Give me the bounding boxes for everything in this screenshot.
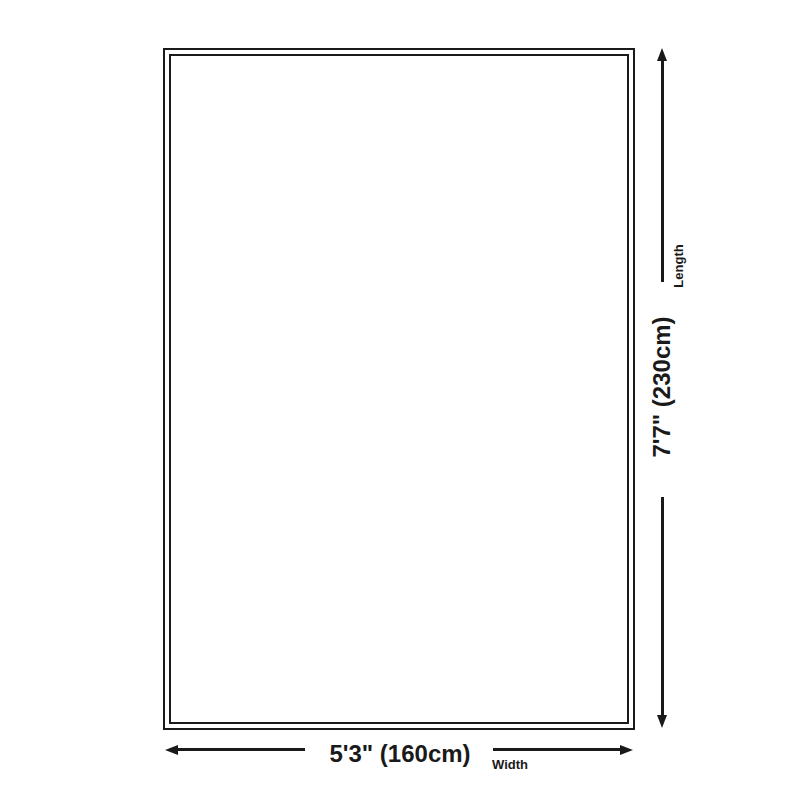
length-value: 7'7" (230cm) bbox=[648, 316, 676, 457]
arrow-down-icon bbox=[657, 715, 667, 728]
width-line-right bbox=[493, 748, 621, 751]
width-value: 5'3" (160cm) bbox=[329, 740, 470, 768]
rug-size-diagram: Length 7'7" (230cm) 5'3" (160cm) Width bbox=[0, 0, 800, 800]
arrow-right-icon bbox=[620, 745, 633, 755]
rug-outline bbox=[163, 48, 635, 730]
length-label: Length bbox=[671, 244, 686, 287]
length-line-bottom bbox=[661, 497, 664, 717]
width-label: Width bbox=[492, 757, 528, 772]
length-line-top bbox=[661, 58, 664, 282]
width-line-left bbox=[177, 748, 305, 751]
rug-inner-outline bbox=[169, 54, 629, 724]
